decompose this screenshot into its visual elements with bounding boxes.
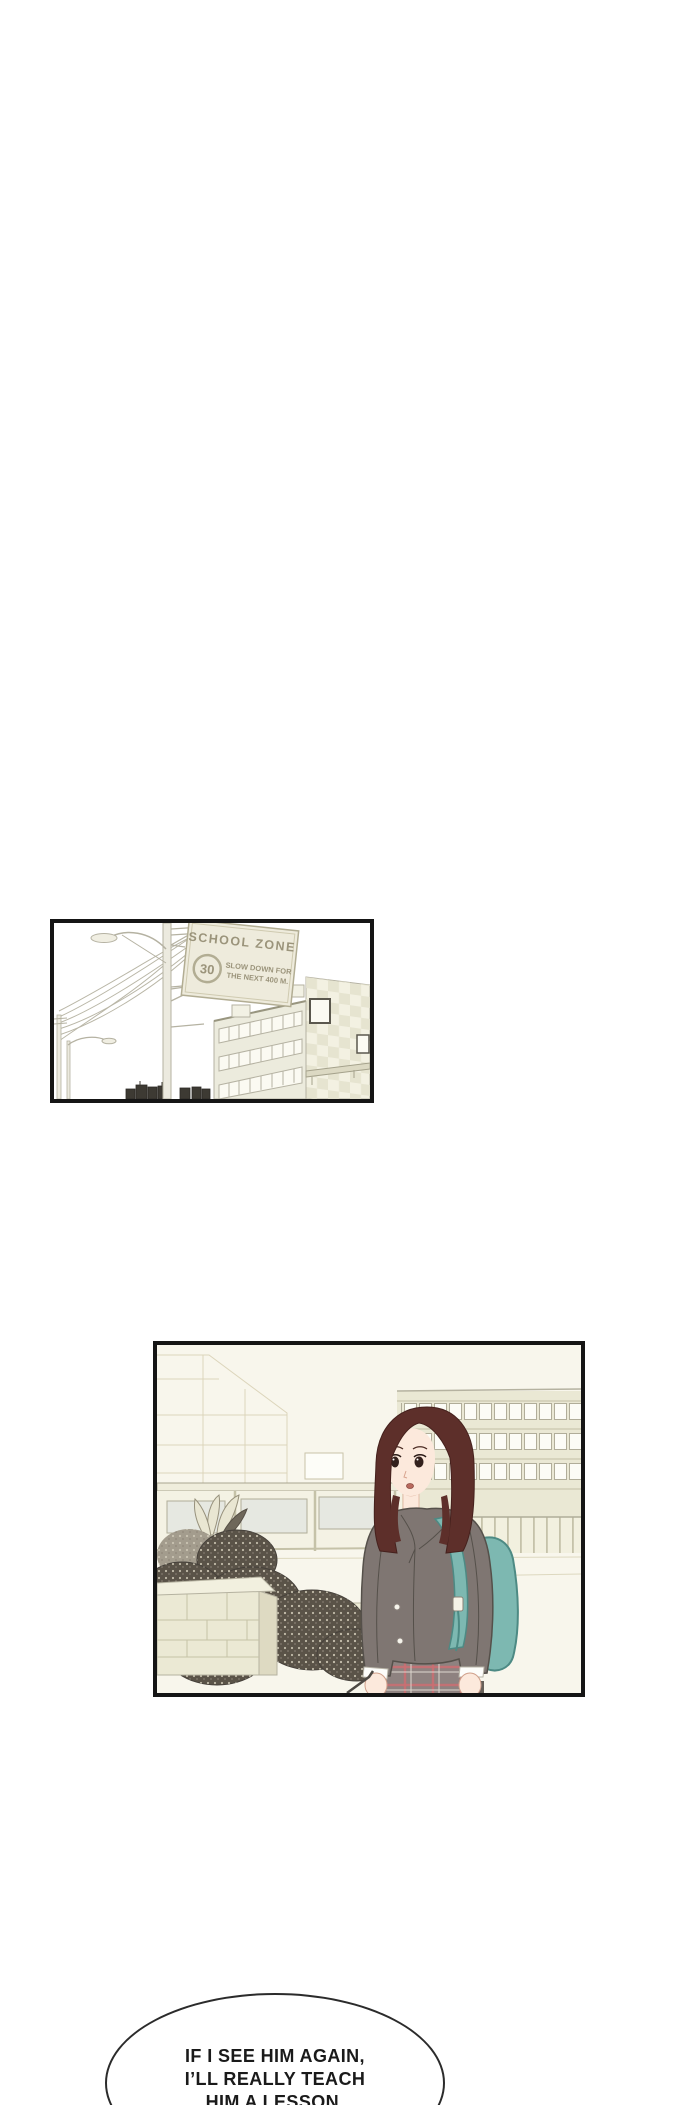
speech-bubble: IF I SEE HIM AGAIN, I’LL REALLY TEACH HI…: [105, 1993, 445, 2105]
school-zone-sign: SCHOOL ZONE 30 SLOW DOWN FOR THE NEXT 40…: [181, 923, 298, 1007]
girl-mouth: [407, 1484, 414, 1489]
blazer-button: [397, 1638, 403, 1644]
schoolgirl-scene-drawing: [157, 1345, 581, 1693]
street-lamp-icon: [67, 1037, 116, 1099]
comic-page: SCHOOL ZONE 30 SLOW DOWN FOR THE NEXT 40…: [0, 0, 700, 2105]
panel-school-zone-scene: SCHOOL ZONE 30 SLOW DOWN FOR THE NEXT 40…: [50, 919, 374, 1103]
speech-bubble-text: IF I SEE HIM AGAIN, I’LL REALLY TEACH HI…: [107, 2045, 443, 2105]
strap-buckle: [453, 1597, 463, 1611]
street-scene-drawing: SCHOOL ZONE 30 SLOW DOWN FOR THE NEXT 40…: [54, 923, 370, 1099]
bubble-line-1: IF I SEE HIM AGAIN,: [107, 2045, 443, 2068]
street-lamp-head-icon: [91, 934, 117, 943]
speed-limit-value: 30: [199, 961, 215, 977]
blazer-button: [394, 1604, 400, 1610]
bubble-line-3: HIM A LESSON.: [107, 2091, 443, 2105]
bubble-line-2: I’LL REALLY TEACH: [107, 2068, 443, 2091]
planter-stone-wall: [157, 1577, 277, 1675]
utility-pole-icon: [54, 1015, 67, 1099]
panel-schoolgirl-scene: [153, 1341, 585, 1697]
